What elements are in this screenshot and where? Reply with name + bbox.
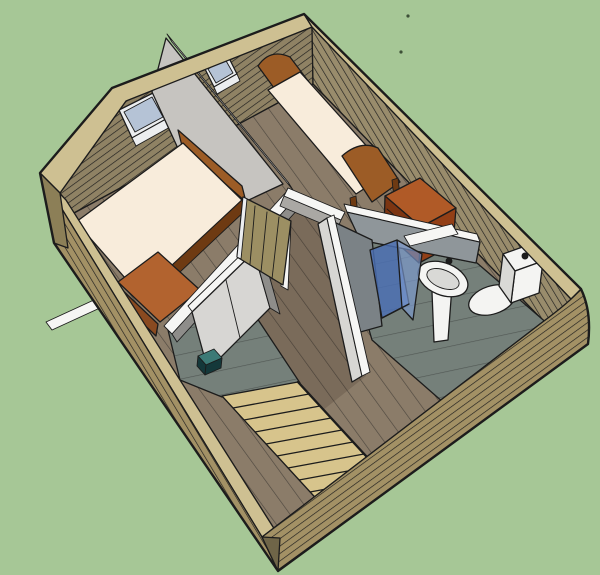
toilet-flush-button[interactable] <box>522 253 528 259</box>
floorplan-3d-render[interactable] <box>0 0 600 575</box>
speck <box>406 14 409 17</box>
sink-faucet[interactable] <box>446 258 452 264</box>
model-viewport[interactable] <box>0 0 600 575</box>
speck <box>399 50 402 53</box>
